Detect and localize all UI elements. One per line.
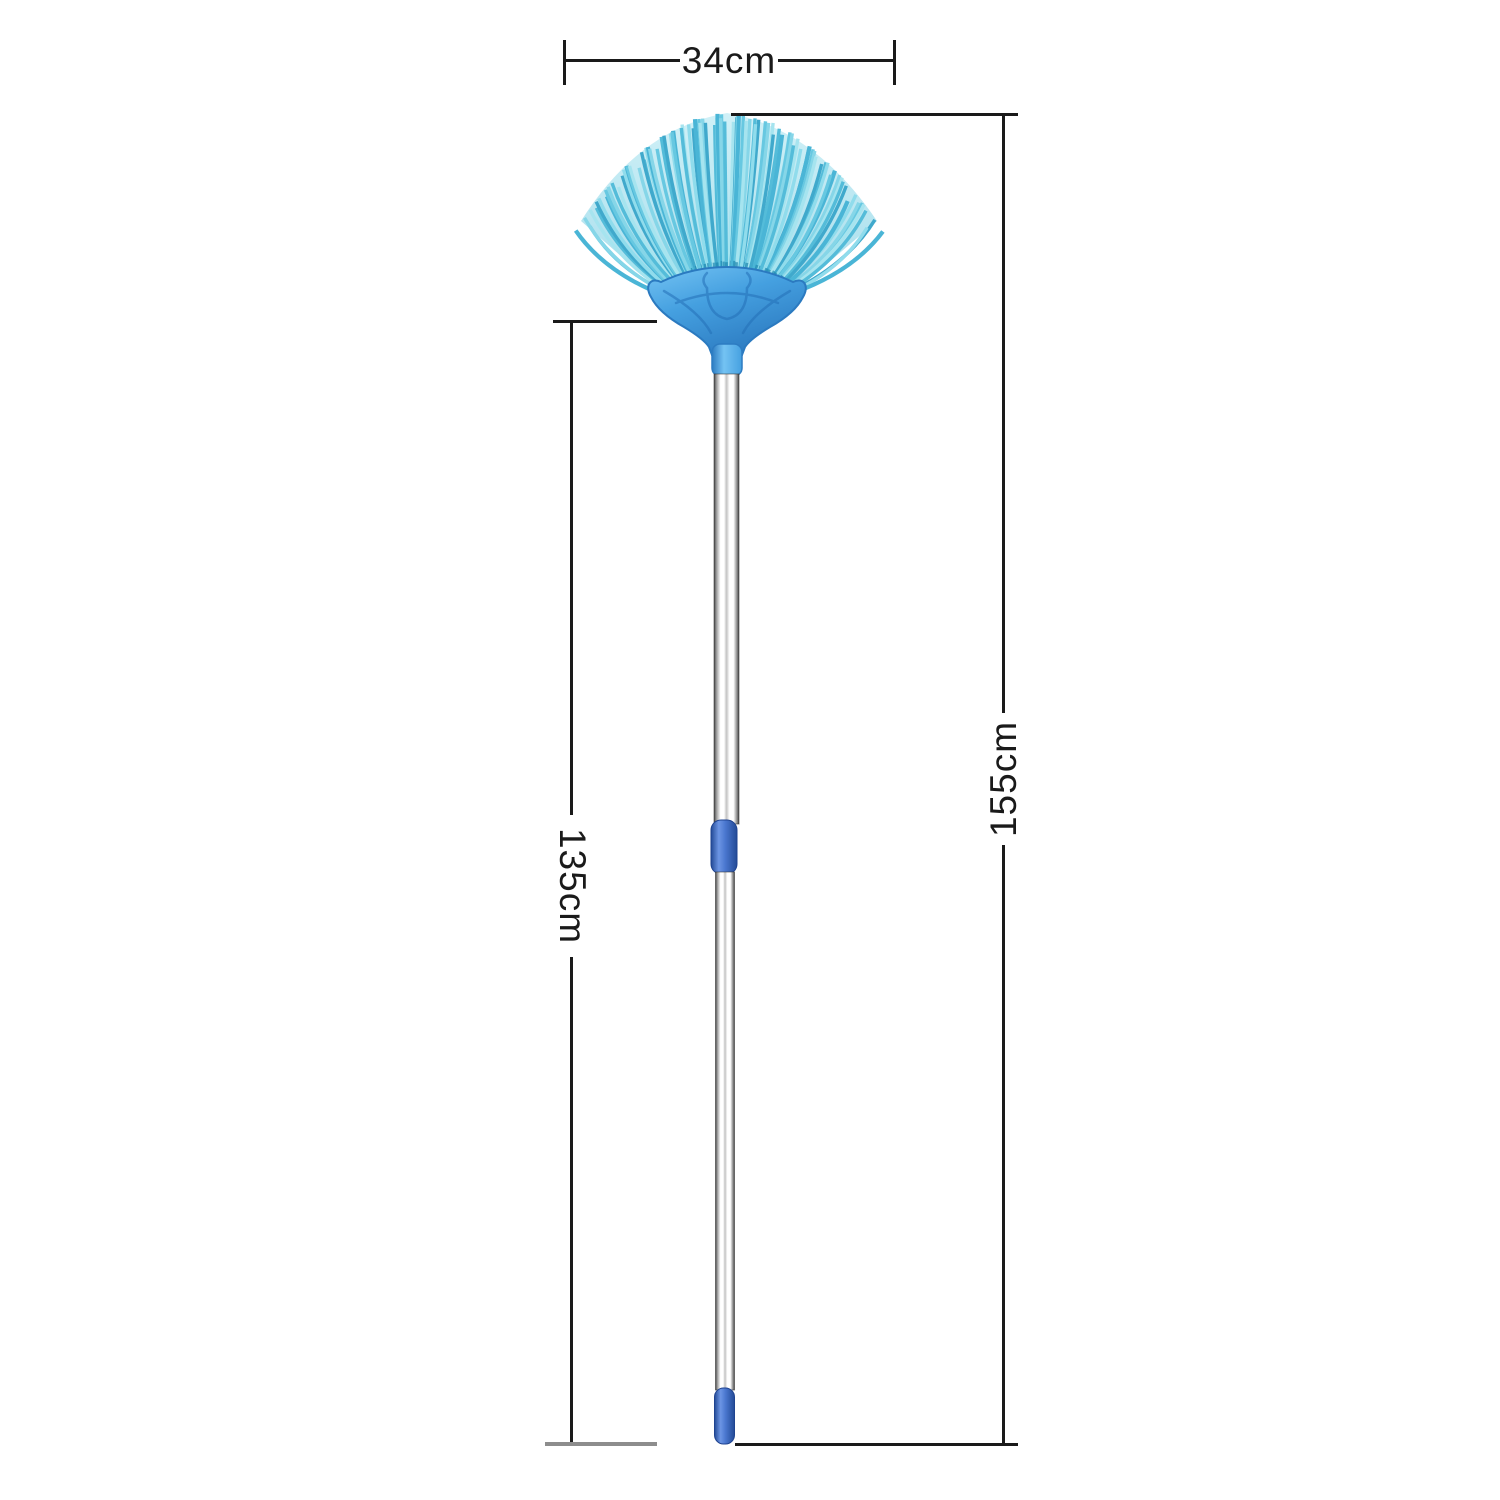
dimension-line bbox=[570, 957, 573, 1444]
dimension-line bbox=[570, 320, 573, 815]
handle-upper-pole bbox=[714, 374, 739, 824]
handle-collar bbox=[711, 820, 737, 874]
dimension-line bbox=[563, 59, 680, 62]
broom-illustration bbox=[0, 0, 1500, 1500]
broom-handle bbox=[711, 374, 739, 1444]
broom-neck bbox=[712, 344, 742, 376]
dimension-width-label: 34cm bbox=[682, 40, 776, 82]
dimension-total-height-label: 155cm bbox=[983, 721, 1025, 837]
handle-tip bbox=[715, 1388, 735, 1444]
broom-head bbox=[648, 267, 806, 376]
dimension-line bbox=[731, 113, 1018, 116]
dimension-line bbox=[545, 1442, 657, 1446]
product-image: 34cm 155cm 135cm bbox=[0, 0, 1500, 1500]
dimension-line bbox=[893, 40, 896, 85]
dimension-handle-height-label: 135cm bbox=[551, 828, 593, 944]
handle-lower-pole bbox=[716, 872, 735, 1390]
dimension-line bbox=[563, 40, 566, 85]
dimension-line bbox=[778, 59, 896, 62]
dimension-line bbox=[1002, 113, 1005, 713]
dimension-line bbox=[553, 320, 657, 323]
dimension-line bbox=[735, 1443, 1018, 1446]
dimension-line bbox=[1002, 845, 1005, 1446]
